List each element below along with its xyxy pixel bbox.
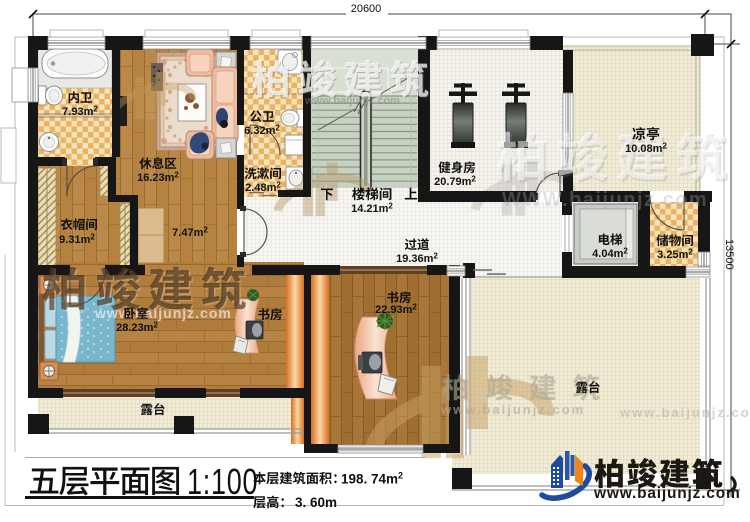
svg-text:7.93m2: 7.93m2 bbox=[62, 105, 98, 119]
svg-text:20.79m2: 20.79m2 bbox=[434, 175, 476, 189]
svg-text:14.21m2: 14.21m2 bbox=[351, 202, 393, 216]
svg-text:4.04m2: 4.04m2 bbox=[592, 247, 628, 261]
svg-text:6.32m2: 6.32m2 bbox=[244, 124, 280, 138]
svg-text:19.36m2: 19.36m2 bbox=[396, 252, 438, 266]
svg-text:WWW.baijunjz.com: WWW.baijunjz.com bbox=[502, 189, 708, 211]
svg-text:www.baijunjz.com: www.baijunjz.com bbox=[94, 305, 232, 321]
svg-text:2.48m2: 2.48m2 bbox=[245, 181, 281, 195]
svg-text:www.baijunjz.com: www.baijunjz.com bbox=[440, 402, 585, 417]
svg-text:7.47m2: 7.47m2 bbox=[172, 226, 208, 240]
svg-text:20600: 20600 bbox=[351, 3, 382, 15]
svg-text:198. 74m2: 198. 74m2 bbox=[341, 471, 403, 487]
svg-text:www.baijunjz.com: www.baijunjz.com bbox=[619, 405, 750, 420]
svg-text:28.23m2: 28.23m2 bbox=[116, 321, 158, 335]
svg-text:22.93m2: 22.93m2 bbox=[375, 303, 417, 317]
svg-text:3.25m2: 3.25m2 bbox=[657, 248, 693, 262]
svg-text:www.baijunjz.com: www.baijunjz.com bbox=[593, 485, 741, 502]
svg-text:13500: 13500 bbox=[723, 239, 735, 270]
svg-text:1:100: 1:100 bbox=[187, 461, 258, 502]
svg-text:www.baijunjz.com: www.baijunjz.com bbox=[304, 95, 400, 107]
svg-text:3. 60m: 3. 60m bbox=[295, 495, 337, 510]
svg-text:9.31m2: 9.31m2 bbox=[59, 233, 95, 247]
svg-text:16.23m2: 16.23m2 bbox=[137, 171, 179, 185]
svg-text:10.08m2: 10.08m2 bbox=[625, 142, 667, 156]
